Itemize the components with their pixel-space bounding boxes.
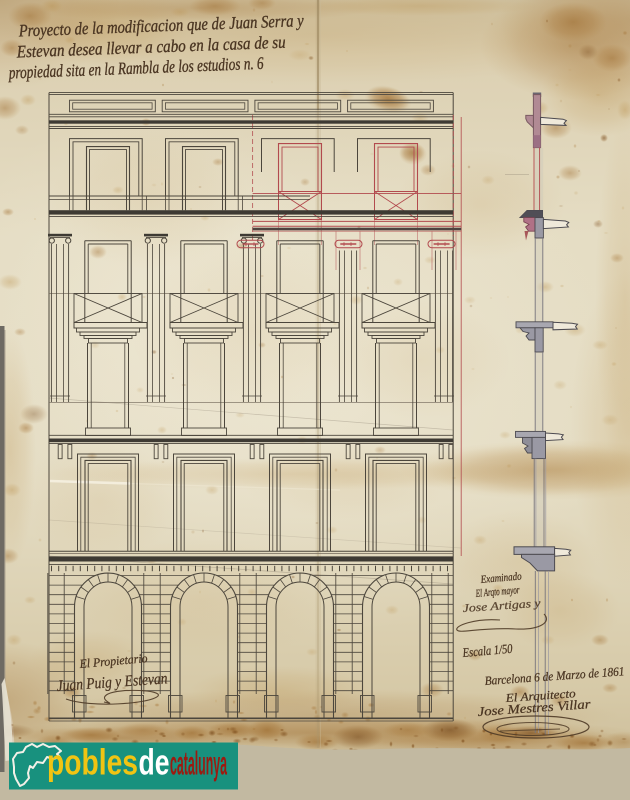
svg-text:catalunya: catalunya <box>170 745 227 782</box>
svg-text:de: de <box>139 742 170 783</box>
svg-text:pobles: pobles <box>47 742 138 783</box>
